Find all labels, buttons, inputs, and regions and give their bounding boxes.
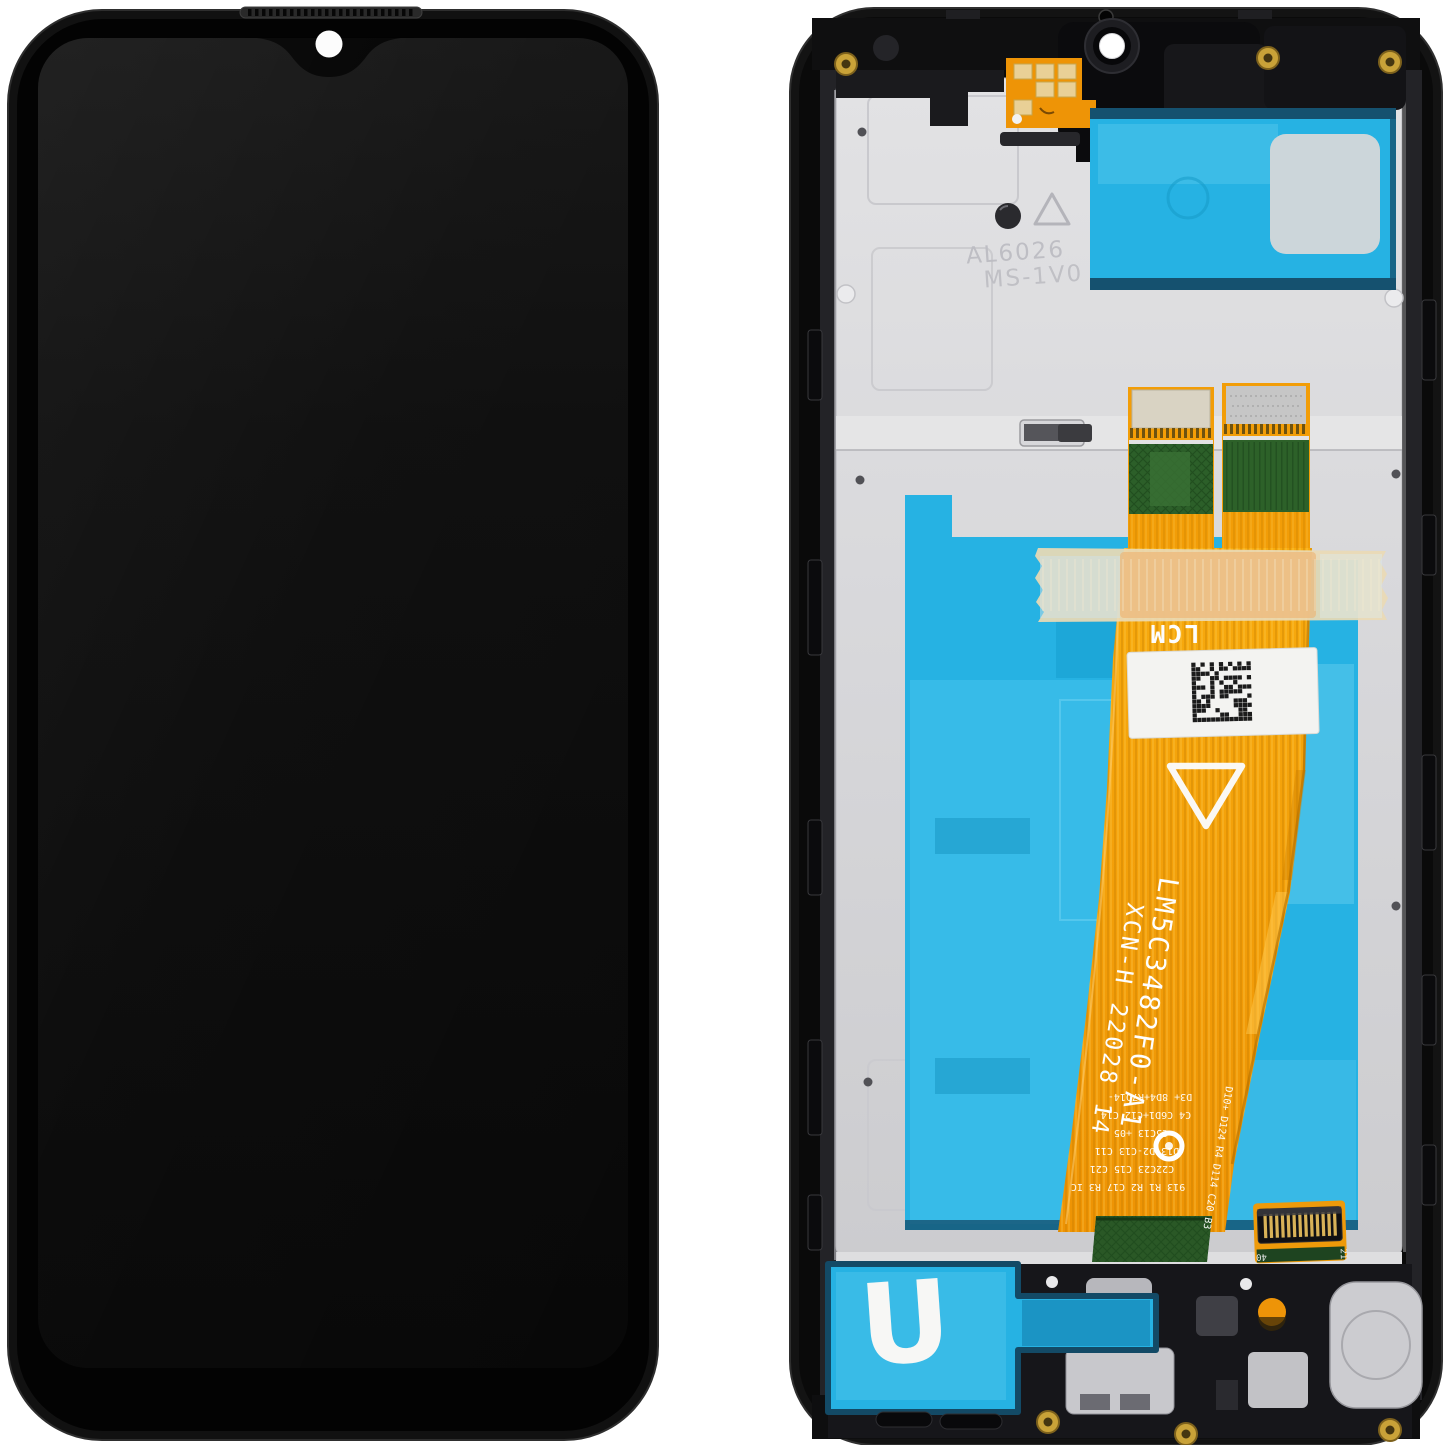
datamatrix-cell <box>1234 698 1238 702</box>
product-photo: AL6026 MS-1V0 <box>0 0 1445 1445</box>
plate-hole <box>856 476 865 485</box>
datamatrix-cell <box>1210 694 1214 698</box>
plate-hole <box>864 1078 873 1087</box>
screw <box>835 53 857 75</box>
screw <box>1379 1419 1401 1441</box>
ribbon-silver-line <box>1223 436 1309 440</box>
screw <box>1037 1411 1059 1433</box>
datamatrix-cell <box>1219 667 1223 671</box>
component-row: 913 R1 R2 C17 R3 IC <box>1071 1181 1185 1192</box>
datamatrix-cell <box>1247 703 1251 707</box>
datamatrix-cell <box>1192 704 1196 708</box>
adhesive-top-right-edge <box>1090 108 1396 119</box>
datamatrix-cell <box>1191 663 1195 667</box>
datamatrix-cell <box>1192 690 1196 694</box>
component-row: C22C23 C15 C21 <box>1090 1163 1174 1174</box>
datamatrix-cell <box>1210 685 1214 689</box>
datamatrix-cell <box>1202 708 1206 712</box>
datamatrix-cell <box>1243 703 1247 707</box>
datamatrix-cell <box>1229 717 1233 721</box>
adhesive-sheen <box>1098 124 1278 184</box>
adhesive-top-right-edge <box>1090 278 1396 290</box>
datamatrix-cell <box>1201 685 1205 689</box>
datamatrix-cell <box>1197 709 1201 713</box>
bottom-dark-block <box>1196 1296 1238 1336</box>
datamatrix-cell <box>1238 703 1242 707</box>
bottom-pill-slot <box>940 1414 1002 1429</box>
ribbon-green-inner <box>1150 452 1190 506</box>
datamatrix-cell <box>1191 667 1195 671</box>
frame-top-notch <box>1238 10 1272 19</box>
datamatrix-cell <box>1191 672 1195 676</box>
flex-lcm-print: LCM <box>1148 619 1199 648</box>
datamatrix-cell <box>1242 666 1246 670</box>
datamatrix-cell <box>1216 717 1220 721</box>
datamatrix-cell <box>1202 704 1206 708</box>
camera-hole <box>1100 34 1125 59</box>
datamatrix-cell <box>1211 717 1215 721</box>
plate-hole <box>1392 902 1401 911</box>
plate-hole <box>858 128 867 137</box>
datamatrix-cell <box>1229 689 1233 693</box>
datamatrix-cell <box>1196 686 1200 690</box>
ribbon-top-pad <box>1132 390 1210 428</box>
plate-hole <box>1392 470 1401 479</box>
datamatrix-cell <box>1247 666 1251 670</box>
ribbon-silver-line <box>1129 440 1213 444</box>
screw-boss <box>1240 1278 1252 1290</box>
datamatrix-cell <box>1206 695 1210 699</box>
datamatrix-cell <box>1239 717 1243 721</box>
connector-pin-label-right: 21 <box>1338 1248 1348 1259</box>
port-slot <box>1080 1394 1110 1410</box>
datamatrix-cell <box>1228 662 1232 666</box>
datamatrix-cell <box>1224 685 1228 689</box>
datamatrix-cell <box>1237 666 1241 670</box>
connector-pin-label-left: 40 <box>1256 1251 1267 1261</box>
datamatrix-cell <box>1220 694 1224 698</box>
adhesive-letter-u: U <box>855 1256 955 1392</box>
component-row: C4 C6D1+C12 C14 <box>1101 1109 1191 1120</box>
datamatrix-cell <box>1248 712 1252 716</box>
datamatrix-cell <box>1229 685 1233 689</box>
datamatrix-cell <box>1247 693 1251 697</box>
datamatrix-cell <box>1224 666 1228 670</box>
frame-right-gap <box>1406 70 1422 1400</box>
datamatrix-cell <box>1220 713 1224 717</box>
adhesive-top-right <box>1090 108 1396 290</box>
front-screen-sheen <box>38 38 628 1368</box>
datamatrix-cell <box>1238 675 1242 679</box>
datamatrix-cell <box>1243 712 1247 716</box>
plate-screw-boss <box>837 285 855 303</box>
datamatrix-cell <box>1214 671 1218 675</box>
datamatrix-cell <box>1210 662 1214 666</box>
datamatrix-cell <box>1210 667 1214 671</box>
datamatrix-cell <box>1193 718 1197 722</box>
datamatrix-cell <box>1238 707 1242 711</box>
datamatrix-cell <box>1225 712 1229 716</box>
plate-silver-edge-right <box>1403 96 1406 1252</box>
frame-top-notch <box>946 10 980 19</box>
datamatrix-cell <box>1197 704 1201 708</box>
datamatrix-cell <box>1210 681 1214 685</box>
ribbon-orange-stripes <box>1223 512 1309 548</box>
datamatrix-cell <box>1233 666 1237 670</box>
datamatrix-cell <box>1233 680 1237 684</box>
datamatrix-cell <box>1247 684 1251 688</box>
bottom-dark-block <box>1216 1380 1238 1410</box>
datamatrix-cell <box>1200 662 1204 666</box>
tape-blue-tint <box>1320 554 1382 618</box>
datamatrix-cell <box>1197 699 1201 703</box>
datamatrix-cell <box>1243 717 1247 721</box>
datamatrix-cell <box>1233 675 1237 679</box>
datamatrix-cell <box>1239 712 1243 716</box>
flex-fiducial-dot <box>1165 1142 1173 1150</box>
datamatrix-cell <box>1238 689 1242 693</box>
plate-stamped-band <box>836 416 1402 450</box>
datamatrix-cell <box>1192 709 1196 713</box>
adhesive-top-right-edge <box>1390 108 1396 290</box>
datamatrix-cell <box>1192 676 1196 680</box>
datamatrix-cell <box>1238 684 1242 688</box>
datamatrix-cell <box>1234 703 1238 707</box>
screw-boss <box>1046 1276 1058 1288</box>
datamatrix-cell <box>1215 708 1219 712</box>
datamatrix-cell <box>1243 707 1247 711</box>
datamatrix-cell <box>1210 690 1214 694</box>
datamatrix-cell <box>1196 667 1200 671</box>
datamatrix-cell <box>1243 698 1247 702</box>
datamatrix-cell <box>1192 695 1196 699</box>
top-slot <box>1000 132 1080 146</box>
datamatrix-cell <box>1224 694 1228 698</box>
screw <box>1175 1423 1197 1445</box>
port-slot <box>1120 1394 1150 1410</box>
screw <box>1257 47 1279 69</box>
plate-dark-slot <box>1058 424 1092 442</box>
datamatrix-cell <box>1248 716 1252 720</box>
datamatrix-cell <box>1220 690 1224 694</box>
connector-flex: 40 21 <box>1253 1200 1348 1263</box>
datamatrix-cell <box>1224 689 1228 693</box>
adhesive-main-tab <box>935 818 1030 854</box>
datamatrix-cell <box>1228 676 1232 680</box>
datamatrix-cell <box>1210 676 1214 680</box>
top-plastic-bump <box>873 35 899 61</box>
adhesive-cutout <box>1270 134 1380 254</box>
component-row: D3+ 8D4+R7D14- <box>1108 1091 1192 1102</box>
datamatrix-cell <box>1225 717 1229 721</box>
datamatrix-cell <box>1206 699 1210 703</box>
datamatrix-cell <box>1238 698 1242 702</box>
datamatrix-cell <box>1197 718 1201 722</box>
plate-silver-edge-left <box>834 90 837 1260</box>
front-speaker-grille <box>240 7 422 18</box>
datamatrix-cell <box>1237 661 1241 665</box>
datamatrix-cell <box>1220 717 1224 721</box>
datamatrix-cell <box>1192 681 1196 685</box>
photo-canvas: AL6026 MS-1V0 <box>0 0 1445 1445</box>
datamatrix-cell <box>1246 661 1250 665</box>
datamatrix-cell <box>1233 689 1237 693</box>
datamatrix-cell <box>1206 704 1210 708</box>
bottom-mid-block <box>1248 1352 1308 1408</box>
bottom-pill-slot <box>876 1412 932 1427</box>
flex-ribbon-left <box>1128 387 1214 548</box>
datamatrix-cell <box>1206 718 1210 722</box>
datamatrix-cell <box>1247 675 1251 679</box>
sensor-flex-hole <box>1012 114 1022 124</box>
plate-screw-boss <box>1385 289 1403 307</box>
phone-back-view: AL6026 MS-1V0 <box>790 8 1442 1445</box>
datamatrix-cell <box>1215 676 1219 680</box>
datamatrix-cell <box>1201 672 1205 676</box>
adhesive-main-tab <box>935 1058 1030 1094</box>
flex-ribbon-right <box>1222 383 1310 548</box>
datamatrix-cell <box>1234 717 1238 721</box>
datamatrix-cell <box>1205 672 1209 676</box>
phone-front-view <box>8 7 658 1440</box>
datamatrix-cell <box>1192 699 1196 703</box>
datamatrix-cell <box>1192 686 1196 690</box>
flex-label <box>1127 648 1319 739</box>
speaker-pod <box>1330 1282 1422 1408</box>
datamatrix-cell <box>1202 718 1206 722</box>
datamatrix-cell <box>1193 713 1197 717</box>
masking-tape <box>1035 548 1388 622</box>
datamatrix-cell <box>1196 672 1200 676</box>
datamatrix-cell <box>1242 684 1246 688</box>
flex-stiffener-hatch <box>1092 1216 1212 1262</box>
adhesive-arm-darker <box>1022 1300 1150 1346</box>
datamatrix-cell <box>1201 695 1205 699</box>
datamatrix-cell <box>1224 676 1228 680</box>
datamatrix-cell <box>1219 680 1223 684</box>
datamatrix-cell <box>1219 662 1223 666</box>
datamatrix-cell <box>1196 676 1200 680</box>
ribbon-orange-stripes <box>1129 514 1213 548</box>
screw <box>1379 51 1401 73</box>
